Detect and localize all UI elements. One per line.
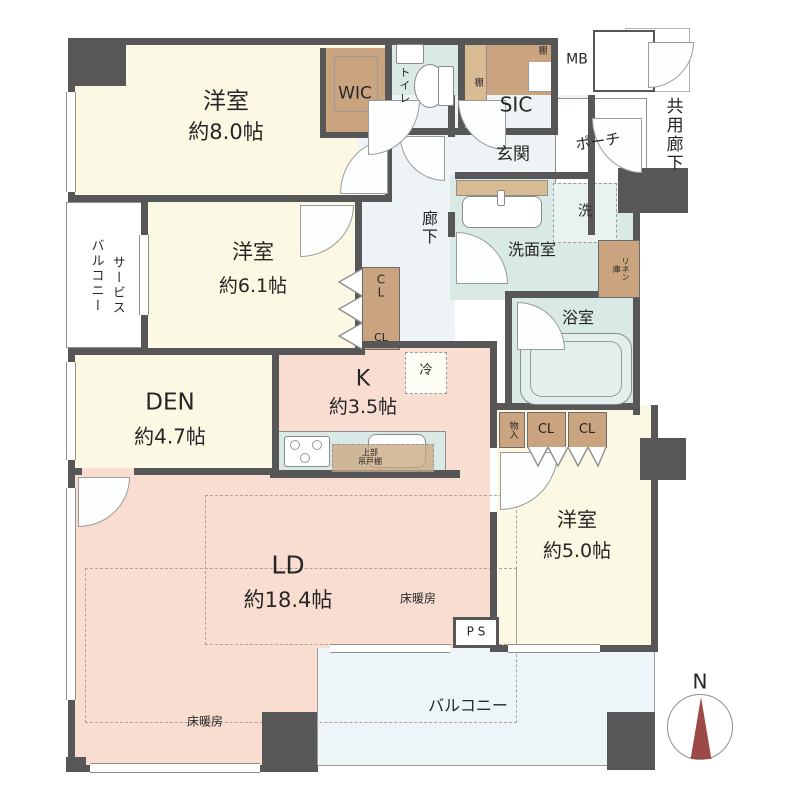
label-linen: リネン庫 bbox=[609, 254, 629, 284]
label-closet-right: CL bbox=[579, 422, 595, 438]
compass-circle bbox=[667, 694, 733, 760]
label-bathroom: 浴室 bbox=[562, 308, 594, 328]
wall bbox=[455, 172, 595, 179]
label-washer: 洗 bbox=[578, 203, 592, 221]
folding-door-closets bbox=[527, 447, 607, 469]
label-floor-heating-lower: 床暖房 bbox=[187, 715, 223, 730]
label-den: DEN bbox=[145, 389, 194, 418]
label-closet-left: CL bbox=[538, 422, 554, 438]
stove-burner bbox=[290, 440, 300, 450]
wall bbox=[68, 468, 82, 475]
label-fridge: 冷 bbox=[419, 363, 432, 379]
label-hanging-cupboard: 上部 吊戸棚 bbox=[358, 449, 382, 467]
wall bbox=[68, 348, 365, 355]
pillar bbox=[607, 712, 655, 770]
label-den-area: 約4.7帖 bbox=[134, 425, 206, 450]
wall bbox=[272, 348, 279, 475]
wall bbox=[68, 38, 558, 45]
label-bedroom61-area: 約6.1帖 bbox=[219, 275, 287, 299]
label-balcony: バルコニー bbox=[428, 696, 508, 716]
label-hallway: 廊下 bbox=[418, 210, 438, 246]
window bbox=[66, 488, 76, 700]
label-kitchen: K bbox=[356, 365, 370, 393]
floorplan: 洋室 約8.0帖 WIC トイレ 棚 棚 SIC MB 共用廊下 ポーチ 玄関 … bbox=[0, 0, 800, 800]
label-shelf-side: 棚 bbox=[471, 78, 482, 87]
label-entrance: 玄関 bbox=[496, 144, 530, 165]
label-hanging-l2: 吊戸棚 bbox=[358, 457, 382, 466]
label-ld-area: 約18.4帖 bbox=[244, 587, 333, 613]
stove-burner bbox=[300, 453, 310, 463]
label-compass-north: N bbox=[693, 670, 708, 695]
hanging-cupboard bbox=[332, 444, 434, 472]
label-shelf-corner: 棚 bbox=[538, 46, 547, 57]
wall bbox=[505, 291, 512, 410]
folding-door-cl-mid bbox=[336, 268, 362, 350]
window bbox=[66, 362, 76, 460]
wall bbox=[448, 212, 455, 237]
label-bedroom50: 洋室 bbox=[557, 508, 597, 533]
wall bbox=[134, 468, 279, 475]
label-service-balcony: バルコニー サービス bbox=[87, 216, 125, 341]
meter-box bbox=[593, 30, 655, 92]
wall bbox=[551, 38, 558, 135]
stove bbox=[284, 436, 330, 467]
label-cl-mid-cl: CL bbox=[374, 331, 388, 345]
toilet-hand-basin bbox=[396, 44, 424, 64]
pillar bbox=[640, 438, 686, 480]
compass-needle bbox=[688, 697, 714, 759]
label-toilet: トイレ bbox=[397, 67, 411, 106]
stove-burner bbox=[312, 440, 322, 450]
window-balcony-door bbox=[330, 644, 450, 653]
label-washroom: 洗面室 bbox=[508, 240, 556, 260]
label-ps: P S bbox=[467, 625, 486, 640]
label-bedroom8-area: 約8.0帖 bbox=[188, 119, 263, 145]
pillar bbox=[66, 757, 86, 772]
wall bbox=[490, 348, 497, 448]
wall-wic bbox=[320, 48, 326, 138]
label-floor-heating-upper: 床暖房 bbox=[400, 592, 436, 607]
vanity-tap bbox=[497, 190, 505, 206]
window bbox=[66, 92, 76, 192]
label-service-balcony-line1: サービス bbox=[109, 236, 125, 336]
label-mb: MB bbox=[566, 51, 588, 69]
label-common-corridor: 共用廊下 bbox=[661, 97, 682, 173]
pillar bbox=[618, 168, 688, 213]
label-sic: SIC bbox=[500, 93, 533, 118]
window bbox=[139, 235, 149, 315]
label-cl-mid: C L bbox=[377, 273, 385, 298]
wall bbox=[68, 195, 392, 202]
label-bedroom61: 洋室 bbox=[232, 239, 274, 265]
label-wic: WIC bbox=[338, 83, 372, 104]
window bbox=[90, 763, 260, 773]
toilet-tank bbox=[438, 66, 454, 106]
label-hanging-l1: 上部 bbox=[362, 448, 378, 457]
label-ld: LD bbox=[271, 549, 304, 580]
label-service-balcony-line2: バルコニー bbox=[87, 216, 103, 336]
label-monoire: 物入 bbox=[506, 421, 517, 439]
label-kitchen-area: 約3.5帖 bbox=[329, 396, 397, 420]
label-bedroom50-area: 約5.0帖 bbox=[543, 540, 611, 564]
pillar bbox=[68, 38, 126, 86]
label-cl-mid-l: L bbox=[378, 285, 385, 299]
pillar bbox=[262, 712, 317, 772]
window bbox=[508, 644, 600, 653]
label-bedroom8: 洋室 bbox=[203, 88, 249, 117]
